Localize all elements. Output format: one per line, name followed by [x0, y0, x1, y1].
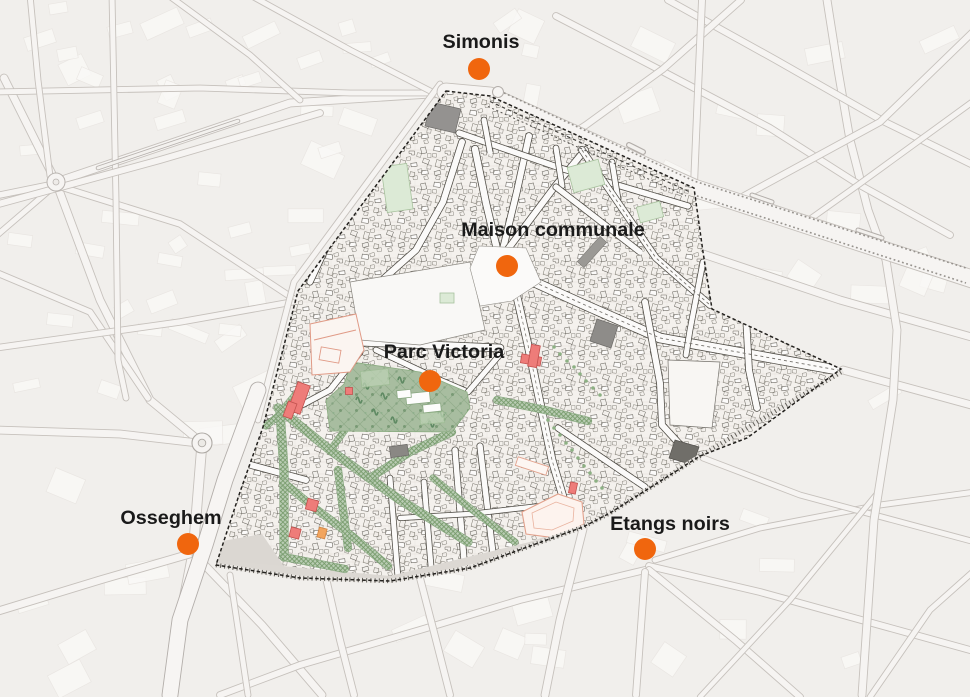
svg-text:Osseghem: Osseghem	[120, 507, 221, 529]
svg-text:Parc Victoria: Parc Victoria	[384, 341, 506, 363]
svg-text:Etangs noirs: Etangs noirs	[610, 513, 730, 535]
svg-text:Simonis: Simonis	[443, 31, 520, 53]
svg-text:Maison communale: Maison communale	[461, 219, 645, 241]
